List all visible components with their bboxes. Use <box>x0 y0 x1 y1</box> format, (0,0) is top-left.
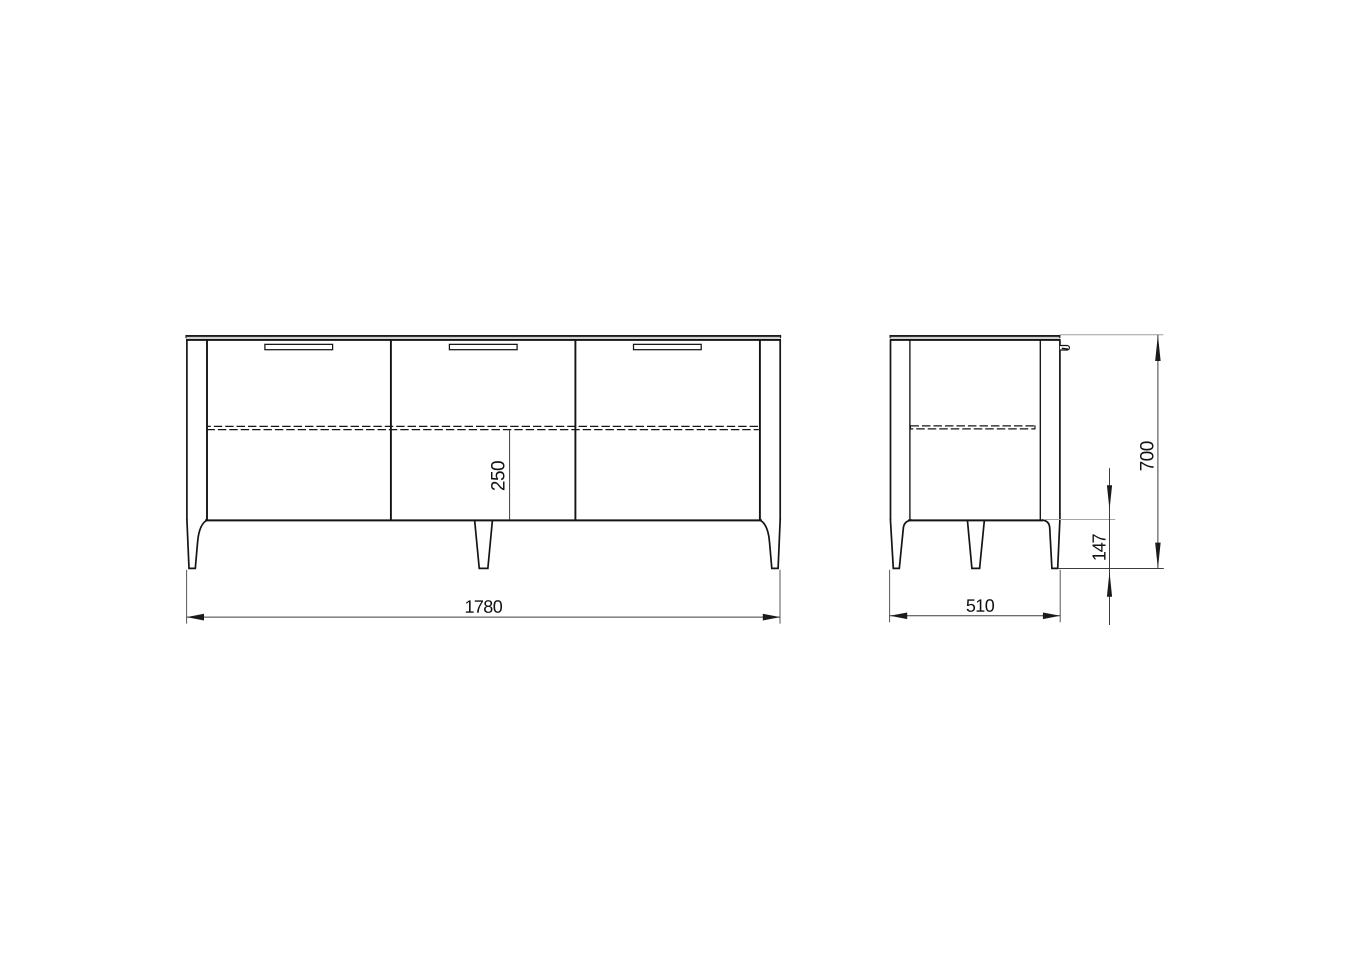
svg-text:510: 510 <box>966 596 995 616</box>
svg-text:700: 700 <box>1138 441 1159 471</box>
svg-text:1780: 1780 <box>464 597 502 617</box>
svg-text:147: 147 <box>1090 533 1110 561</box>
svg-text:250: 250 <box>489 461 510 491</box>
